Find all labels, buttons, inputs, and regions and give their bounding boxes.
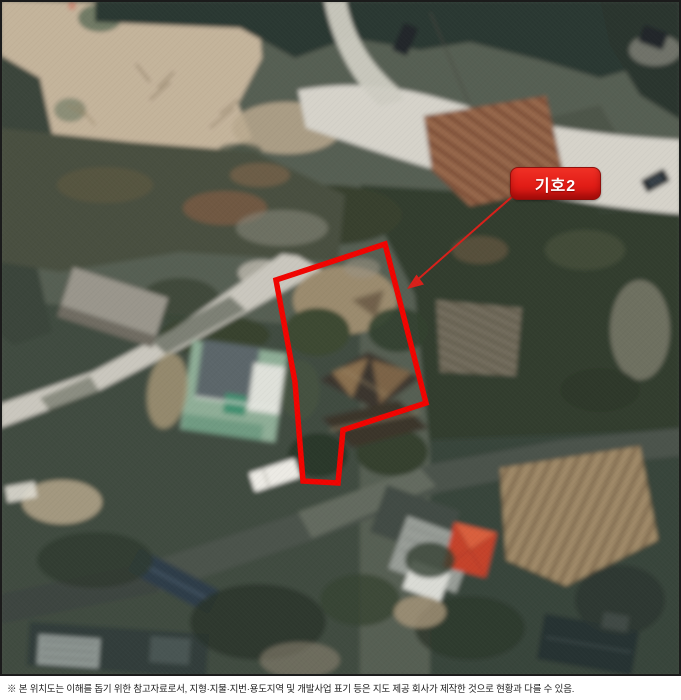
parcel-label: 기호2 — [510, 167, 601, 200]
aerial-photo — [0, 0, 681, 676]
map-disclaimer-text: ※ 본 위치도는 이해를 돕기 위한 참고자료로서, 지형·지물·지번·용도지역… — [7, 681, 574, 695]
map-disclaimer: ※ 본 위치도는 이해를 돕기 위한 참고자료로서, 지형·지물·지번·용도지역… — [0, 676, 681, 700]
location-map: 기호2 — [0, 0, 681, 676]
satellite-background — [0, 0, 681, 676]
parcel-label-text: 기호2 — [535, 172, 576, 196]
garden-rows — [436, 300, 522, 376]
